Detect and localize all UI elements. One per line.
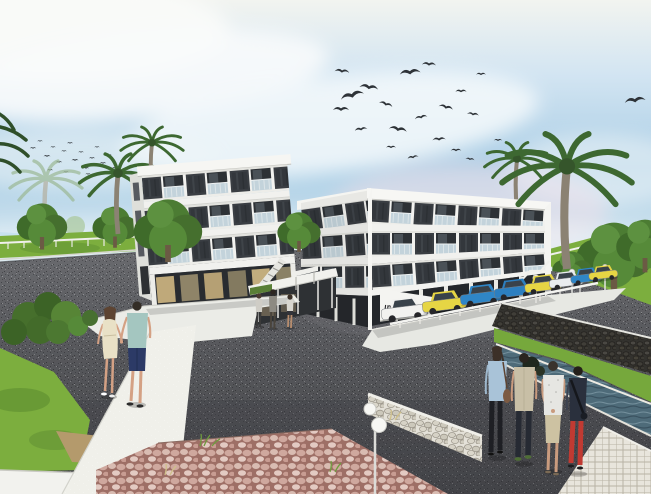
person-trio <box>254 289 295 330</box>
architectural-rendering: ımak evleri <box>0 0 651 494</box>
rendering-canvas: ımak evleri <box>0 0 651 494</box>
